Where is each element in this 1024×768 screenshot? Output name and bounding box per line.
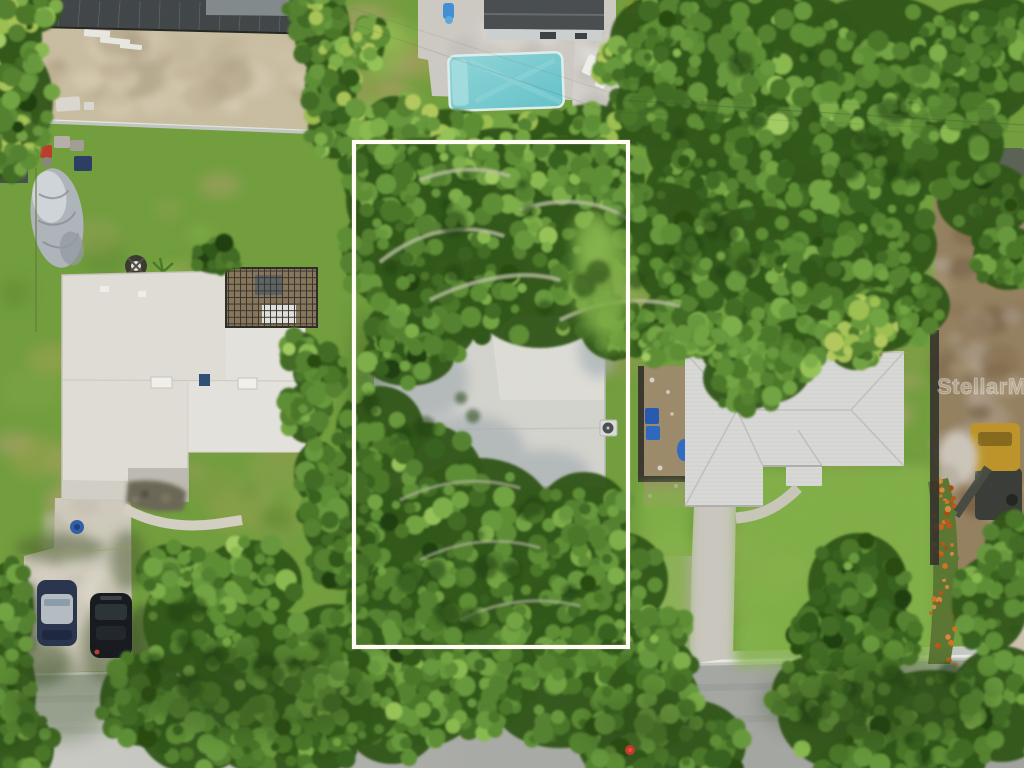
svg-text:StellarMLS: StellarMLS [937,374,1024,399]
